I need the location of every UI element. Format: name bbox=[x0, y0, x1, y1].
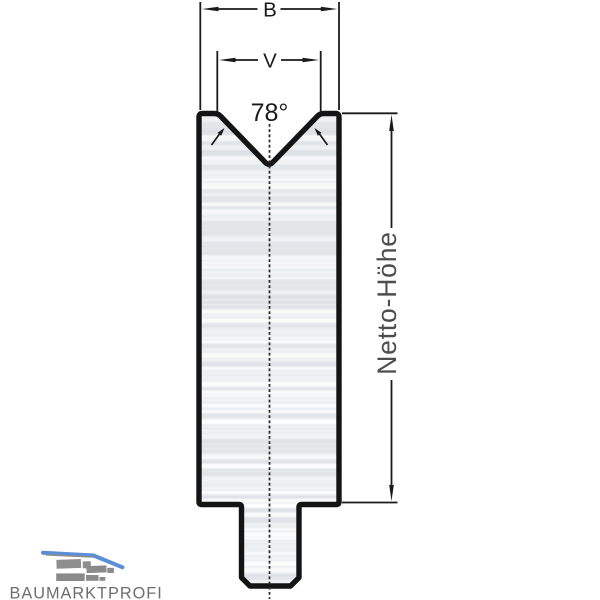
svg-text:B: B bbox=[263, 0, 277, 22]
svg-text:BAUMARKTPROFI: BAUMARKTPROFI bbox=[10, 584, 163, 600]
svg-text:78°: 78° bbox=[251, 99, 289, 127]
svg-text:V: V bbox=[263, 50, 277, 73]
svg-text:Netto-Höhe: Netto-Höhe bbox=[372, 231, 402, 375]
